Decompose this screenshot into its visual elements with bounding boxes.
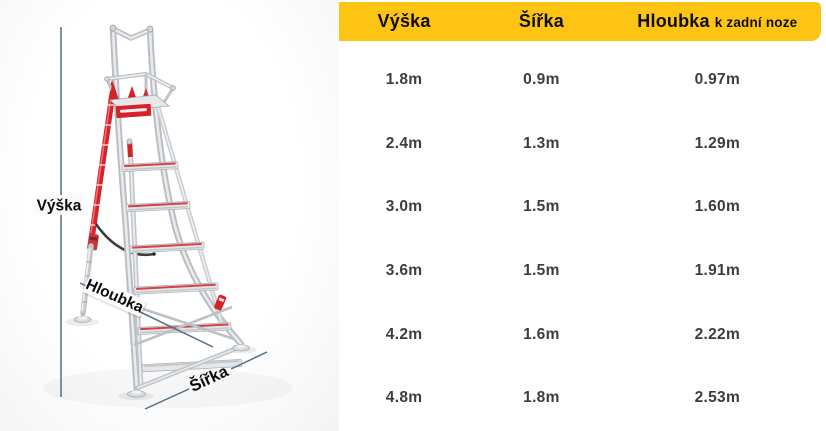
product-dimension-diagram: Výška Hloubka Šířka	[0, 0, 339, 431]
tripod-ladder-illustration: Výška Hloubka Šířka	[0, 0, 339, 431]
brand-plate	[116, 104, 152, 118]
spec-table: Výška Šířka Hloubka k zadní noze 1.8m 0.…	[339, 0, 826, 431]
cell-hloubka: 1.60m	[614, 198, 821, 216]
height-label: Výška	[37, 198, 82, 215]
table-body: 1.8m 0.9m 0.97m 2.4m 1.3m 1.29m 3.0m 1.5…	[339, 48, 821, 430]
column-header-sirka: Šířka	[469, 11, 614, 32]
column-header-vyska: Výška	[339, 11, 469, 32]
cell-hloubka: 1.91m	[614, 262, 821, 280]
cell-vyska: 3.6m	[339, 262, 469, 280]
table-row: 4.8m 1.8m 2.53m	[339, 366, 821, 430]
cell-sirka: 0.9m	[469, 71, 614, 89]
cell-sirka: 1.8m	[469, 389, 614, 407]
table-row: 2.4m 1.3m 1.29m	[339, 112, 821, 176]
cell-hloubka: 2.22m	[614, 326, 821, 344]
cell-hloubka: 1.29m	[614, 135, 821, 153]
header-sublabel: k zadní noze	[715, 15, 798, 30]
cell-sirka: 1.5m	[469, 262, 614, 280]
cell-vyska: 1.8m	[339, 71, 469, 89]
table-header: Výška Šířka Hloubka k zadní noze	[339, 2, 821, 41]
cell-vyska: 2.4m	[339, 135, 469, 153]
header-label: Hloubka	[637, 11, 709, 32]
cell-hloubka: 2.53m	[614, 389, 821, 407]
height-dimension-line: Výška	[35, 27, 84, 397]
header-label: Šířka	[519, 11, 564, 32]
cell-vyska: 4.8m	[339, 389, 469, 407]
cell-vyska: 3.0m	[339, 198, 469, 216]
table-row: 4.2m 1.6m 2.22m	[339, 303, 821, 367]
cell-vyska: 4.2m	[339, 326, 469, 344]
column-header-hloubka: Hloubka k zadní noze	[614, 11, 821, 32]
header-label: Výška	[378, 11, 431, 32]
table-row: 3.6m 1.5m 1.91m	[339, 239, 821, 303]
cell-hloubka: 0.97m	[614, 71, 821, 89]
table-row: 3.0m 1.5m 1.60m	[339, 175, 821, 239]
cell-sirka: 1.6m	[469, 326, 614, 344]
table-row: 1.8m 0.9m 0.97m	[339, 48, 821, 112]
cell-sirka: 1.3m	[469, 135, 614, 153]
cell-sirka: 1.5m	[469, 198, 614, 216]
